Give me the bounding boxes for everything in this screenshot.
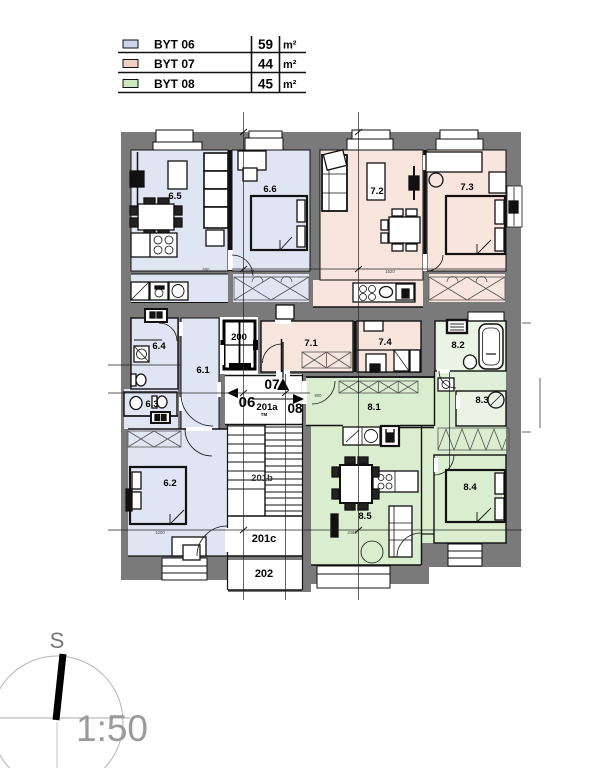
svg-text:m²: m² bbox=[283, 40, 297, 52]
svg-text:8.3: 8.3 bbox=[475, 395, 488, 406]
svg-text:6.5: 6.5 bbox=[168, 191, 182, 202]
svg-text:201b: 201b bbox=[251, 473, 273, 484]
svg-text:BYT 08: BYT 08 bbox=[154, 77, 195, 91]
svg-text:6.1: 6.1 bbox=[196, 365, 210, 376]
svg-text:600: 600 bbox=[203, 267, 211, 272]
svg-text:6.4: 6.4 bbox=[152, 341, 166, 352]
svg-text:TM: TM bbox=[261, 412, 268, 417]
svg-text:201c: 201c bbox=[252, 533, 276, 545]
svg-text:8.4: 8.4 bbox=[463, 482, 477, 493]
svg-text:S: S bbox=[50, 628, 65, 653]
svg-text:202: 202 bbox=[255, 568, 273, 580]
svg-text:7.4: 7.4 bbox=[378, 337, 392, 348]
svg-text:44: 44 bbox=[258, 57, 274, 72]
svg-text:7.2: 7.2 bbox=[370, 186, 383, 197]
svg-text:8.1: 8.1 bbox=[367, 402, 381, 413]
svg-text:900: 900 bbox=[315, 393, 323, 398]
svg-text:m²: m² bbox=[283, 79, 297, 91]
svg-text:201a: 201a bbox=[256, 402, 278, 413]
svg-text:8.2: 8.2 bbox=[451, 340, 464, 351]
svg-text:200: 200 bbox=[231, 332, 247, 343]
svg-text:1200: 1200 bbox=[155, 530, 165, 535]
svg-text:6.6: 6.6 bbox=[263, 184, 276, 195]
svg-text:7.1: 7.1 bbox=[304, 338, 318, 349]
svg-text:1:50: 1:50 bbox=[76, 708, 148, 749]
svg-text:45: 45 bbox=[258, 77, 274, 92]
svg-text:6.2: 6.2 bbox=[163, 478, 176, 489]
svg-text:1450: 1450 bbox=[245, 269, 255, 274]
svg-text:1520: 1520 bbox=[385, 269, 395, 274]
svg-text:59: 59 bbox=[258, 37, 273, 52]
svg-text:m²: m² bbox=[283, 59, 297, 71]
svg-text:6.3: 6.3 bbox=[145, 399, 158, 410]
svg-text:BYT 07: BYT 07 bbox=[154, 57, 195, 71]
svg-text:7.3: 7.3 bbox=[460, 182, 473, 193]
svg-text:BYT 06: BYT 06 bbox=[154, 38, 195, 52]
svg-text:08: 08 bbox=[287, 401, 303, 416]
svg-text:06: 06 bbox=[239, 394, 256, 411]
svg-text:8.5: 8.5 bbox=[358, 511, 372, 522]
